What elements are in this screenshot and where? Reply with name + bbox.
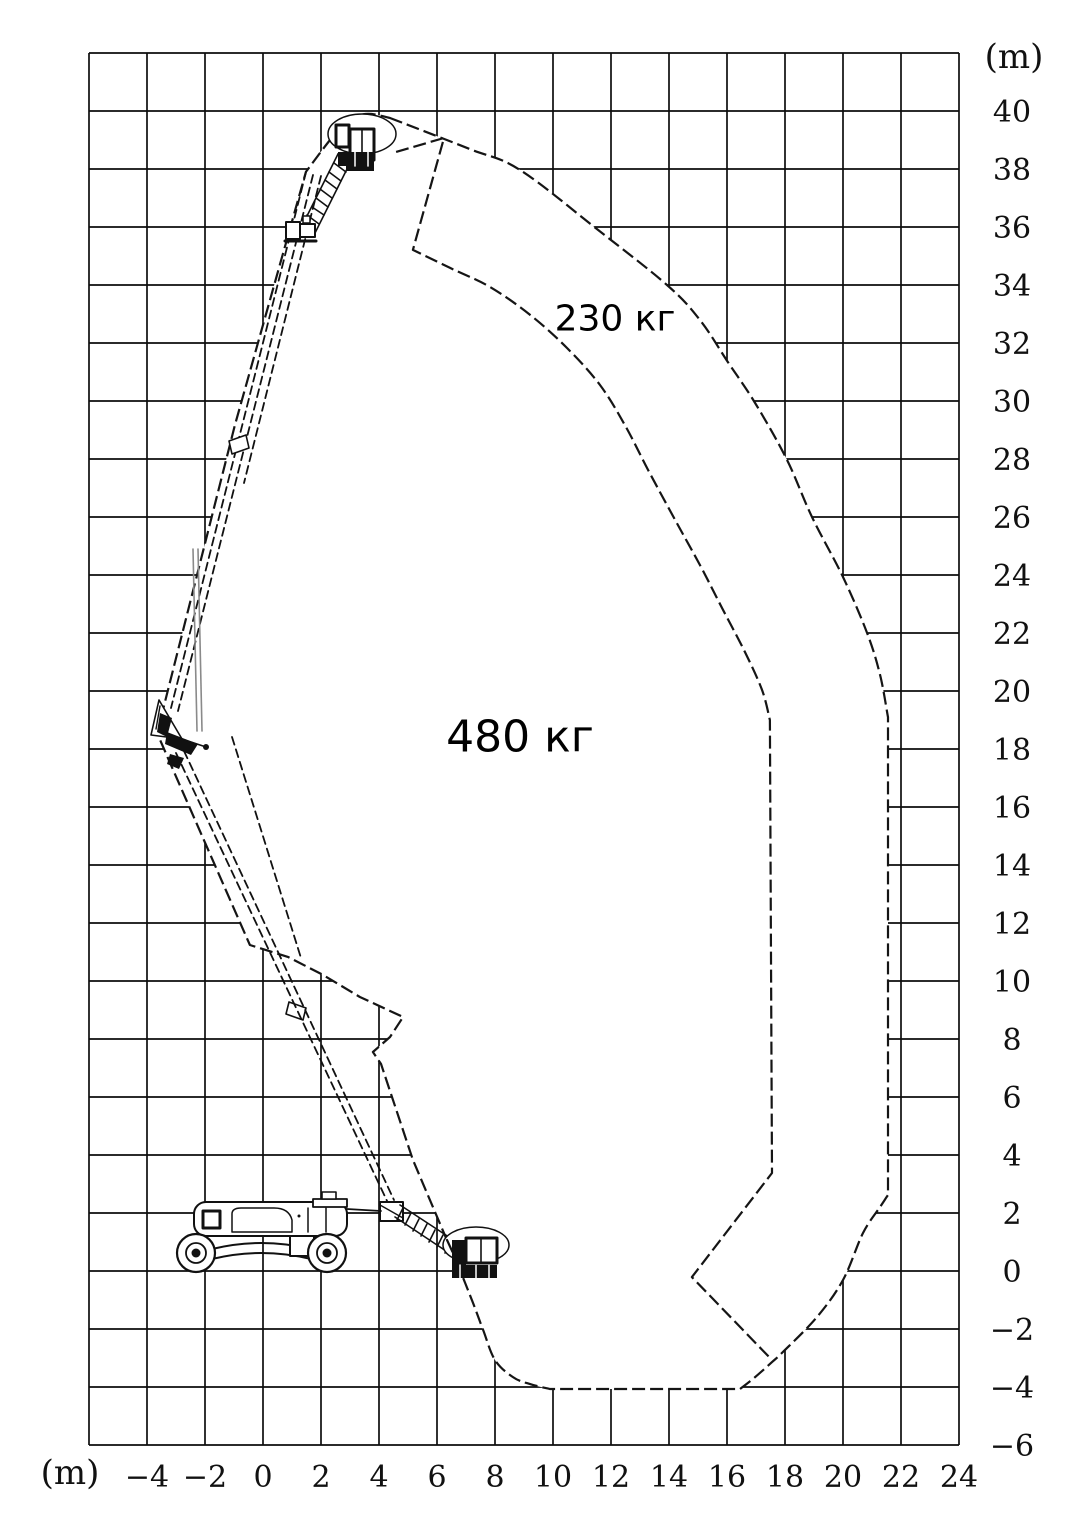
axis-tick-label: 14 xyxy=(650,1460,688,1495)
load-zone-label-480kg: 480 кг xyxy=(446,712,594,763)
axis-tick-label: 22 xyxy=(882,1460,920,1495)
axis-tick-label: 16 xyxy=(993,791,1031,826)
x-axis-unit-label: (m) xyxy=(41,1453,100,1493)
axis-tick-label: 24 xyxy=(940,1460,978,1495)
engine-box xyxy=(203,1211,220,1228)
axis-tick-label: 12 xyxy=(592,1460,630,1495)
axis-tick-label: 30 xyxy=(993,385,1031,420)
load-envelope-chart: 4038363432302826242220181614121086420−2−… xyxy=(0,0,1080,1527)
axis-tick-label: 4 xyxy=(369,1460,388,1495)
axis-tick-label: 26 xyxy=(993,501,1031,536)
axis-tick-label: −4 xyxy=(125,1460,169,1495)
axis-tick-label: −2 xyxy=(990,1313,1034,1348)
axis-tick-label: 0 xyxy=(1002,1255,1021,1290)
axis-tick-label: 18 xyxy=(766,1460,804,1495)
chassis xyxy=(194,1192,403,1259)
load-zone-label-230kg: 230 кг xyxy=(555,299,676,340)
axis-tick-label: −6 xyxy=(990,1429,1034,1464)
axis-tick-label: 16 xyxy=(708,1460,746,1495)
axis-tick-label: 4 xyxy=(1002,1139,1021,1174)
axis-tick-label: 24 xyxy=(993,559,1031,594)
axis-tick-label: 6 xyxy=(1002,1081,1021,1116)
axis-tick-label: 34 xyxy=(993,269,1031,304)
axis-tick-label: 20 xyxy=(993,675,1031,710)
axis-tick-label: 18 xyxy=(993,733,1031,768)
diagram-canvas: 4038363432302826242220181614121086420−2−… xyxy=(0,0,1080,1527)
axis-tick-label: 10 xyxy=(993,965,1031,1000)
axis-tick-label: −2 xyxy=(183,1460,227,1495)
axis-tick-label: 8 xyxy=(485,1460,504,1495)
axis-tick-label: 20 xyxy=(824,1460,862,1495)
axis-tick-label: 38 xyxy=(993,153,1031,188)
axis-tick-label: 12 xyxy=(993,907,1031,942)
axis-tick-label: 0 xyxy=(253,1460,272,1495)
y-axis-unit-label: (m) xyxy=(985,37,1044,77)
axis-tick-label: 28 xyxy=(993,443,1031,478)
axis-tick-label: 2 xyxy=(311,1460,330,1495)
turntable xyxy=(313,1199,347,1207)
axis-tick-label: 8 xyxy=(1002,1023,1021,1058)
axis-tick-label: 32 xyxy=(993,327,1031,362)
axis-tick-label: 40 xyxy=(993,95,1031,130)
axis-tick-label: 10 xyxy=(534,1460,572,1495)
axis-tick-label: 36 xyxy=(993,211,1031,246)
axis-tick-label: 2 xyxy=(1002,1197,1021,1232)
axis-tick-label: −4 xyxy=(990,1371,1034,1406)
axis-tick-label: 6 xyxy=(427,1460,446,1495)
axis-tick-label: 14 xyxy=(993,849,1031,884)
axis-tick-label: 22 xyxy=(993,617,1031,652)
cab-window xyxy=(232,1208,292,1232)
